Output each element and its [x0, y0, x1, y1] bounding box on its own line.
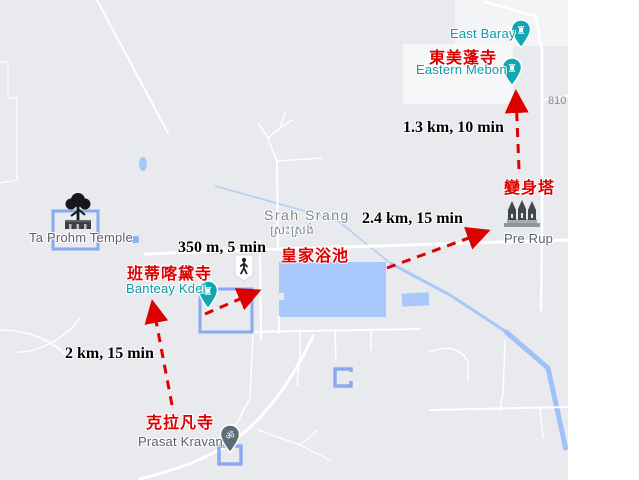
- annotation-srah-srang-zh: 皇家浴池: [281, 242, 349, 266]
- label-eastern-mebon[interactable]: Eastern Mebon: [416, 62, 507, 77]
- annotation-pre-rup-zh: 變身塔: [504, 174, 555, 198]
- distance-mebon-leg: 1.3 km, 10 min: [403, 119, 504, 137]
- distance-banteay-leg: 2 km, 15 min: [65, 345, 154, 363]
- annotation-prasat-kravan-zh: 克拉凡寺: [146, 409, 214, 433]
- label-pre-rup[interactable]: Pre Rup: [504, 231, 553, 246]
- castle-icon: ♜: [516, 25, 526, 37]
- label-route-810: 810: [548, 95, 566, 107]
- map-canvas[interactable]: ♜ ♜ ♜ ॐ: [0, 0, 568, 480]
- om-icon: ॐ: [225, 430, 234, 442]
- route-arrow-kravan-to-banteay: [153, 305, 172, 405]
- label-east-baray[interactable]: East Baray: [450, 26, 516, 41]
- walking-step-icon[interactable]: [233, 253, 255, 288]
- pre-rup-temple-icon[interactable]: [503, 197, 541, 234]
- route-arrow-prerup-to-mebon: [516, 95, 519, 169]
- label-prasat-kravan[interactable]: Prasat Kravan: [138, 434, 223, 449]
- distance-prerup-leg: 2.4 km, 15 min: [362, 210, 463, 228]
- map-screenshot: ♜ ♜ ♜ ॐ: [0, 0, 639, 480]
- route-arrow-srahsrang-to-prerup: [387, 232, 485, 268]
- unloaded-tile-area: [568, 0, 639, 480]
- label-ta-prohm[interactable]: Ta Prohm Temple: [29, 230, 133, 245]
- castle-icon: ♜: [507, 63, 517, 75]
- label-srah-srang[interactable]: Srah Srang: [264, 207, 350, 223]
- label-banteay-kdei[interactable]: Banteay Kdei: [126, 281, 206, 296]
- label-srah-srang-khmer: ស្រះស្រង់: [270, 222, 314, 240]
- distance-srahsrang-leg: 350 m, 5 min: [178, 239, 266, 257]
